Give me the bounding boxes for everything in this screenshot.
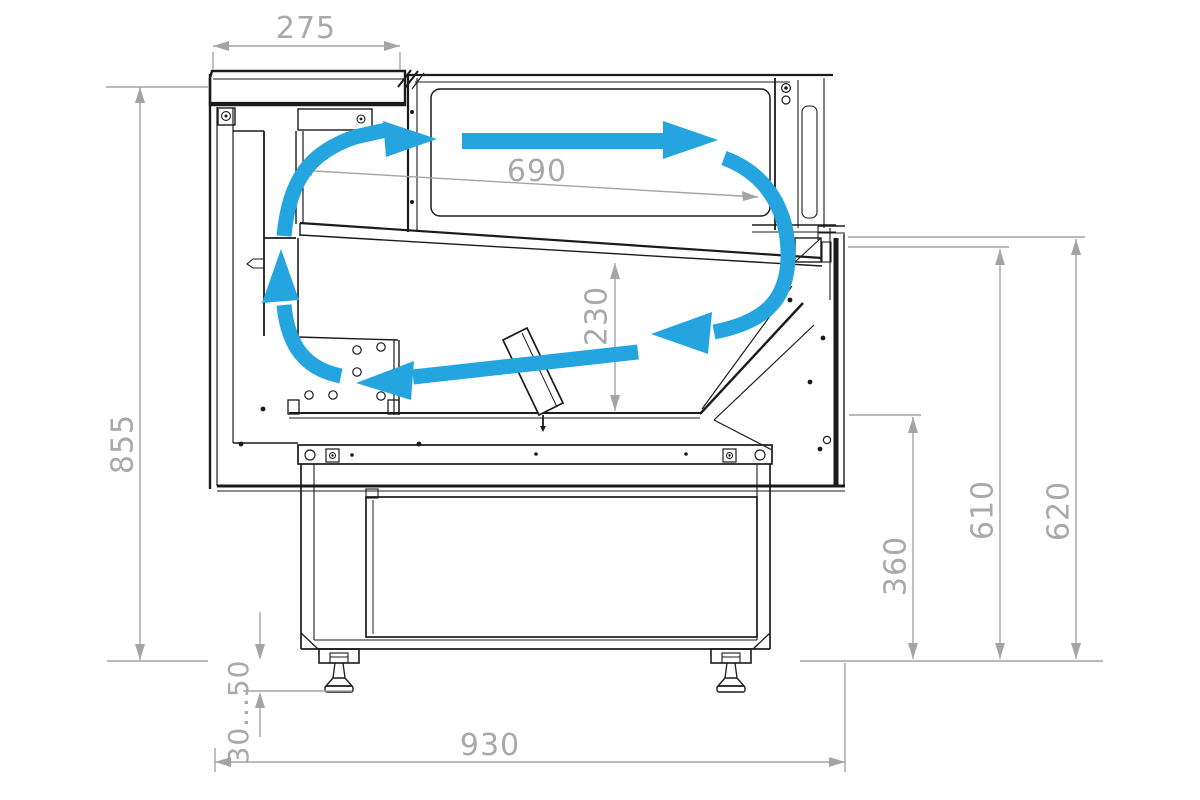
dimension-annotations: 275 855 690 230 — [106, 11, 1104, 772]
plinth-door-panel — [366, 489, 757, 637]
dim-overall-depth-label: 930 — [460, 728, 520, 763]
airflow-down-arrow — [651, 158, 788, 354]
dim-feet-range-label: 30...50 — [222, 660, 255, 765]
dim-canopy-depth: 275 — [213, 11, 400, 70]
cross-section-drawing: 275 855 690 230 — [0, 0, 1200, 800]
dim-well-height-label: 230 — [580, 286, 615, 346]
air-duct-liner — [233, 131, 303, 337]
back-wall — [210, 74, 233, 489]
dim-feet-range: 30...50 — [222, 612, 352, 764]
dim-canopy-depth-label: 275 — [276, 11, 336, 46]
dim-overall-height: 855 — [106, 87, 209, 660]
interior-well-bottom — [239, 407, 700, 447]
dim-front-height-inner: 610 — [848, 247, 1009, 659]
dim-lower-front-height: 360 — [849, 415, 921, 659]
dim-overall-depth: 930 — [215, 663, 845, 772]
dim-overall-height-label: 855 — [106, 414, 141, 474]
dim-deck-length: 690 — [297, 154, 758, 201]
canopy-brackets — [218, 108, 372, 130]
rear-canopy — [210, 71, 405, 105]
dim-lower-front-height-label: 360 — [879, 536, 914, 596]
glass-superstructure — [408, 75, 833, 232]
dim-well-height: 230 — [580, 263, 621, 411]
dim-deck-length-label: 690 — [507, 154, 567, 189]
diagram-canvas: 275 855 690 230 — [0, 0, 1200, 800]
display-deck — [300, 223, 836, 266]
plinth-base — [298, 445, 772, 649]
adjustable-foot-right — [711, 649, 751, 692]
dim-front-height-inner-label: 610 — [966, 480, 1001, 540]
airflow-up-arrow — [262, 121, 437, 376]
product-divider — [503, 328, 563, 432]
dim-front-height-outer-label: 620 — [1042, 481, 1077, 541]
adjustable-foot-left — [319, 649, 359, 692]
glass-panel — [431, 89, 770, 216]
airflow-top-arrow — [462, 121, 718, 159]
